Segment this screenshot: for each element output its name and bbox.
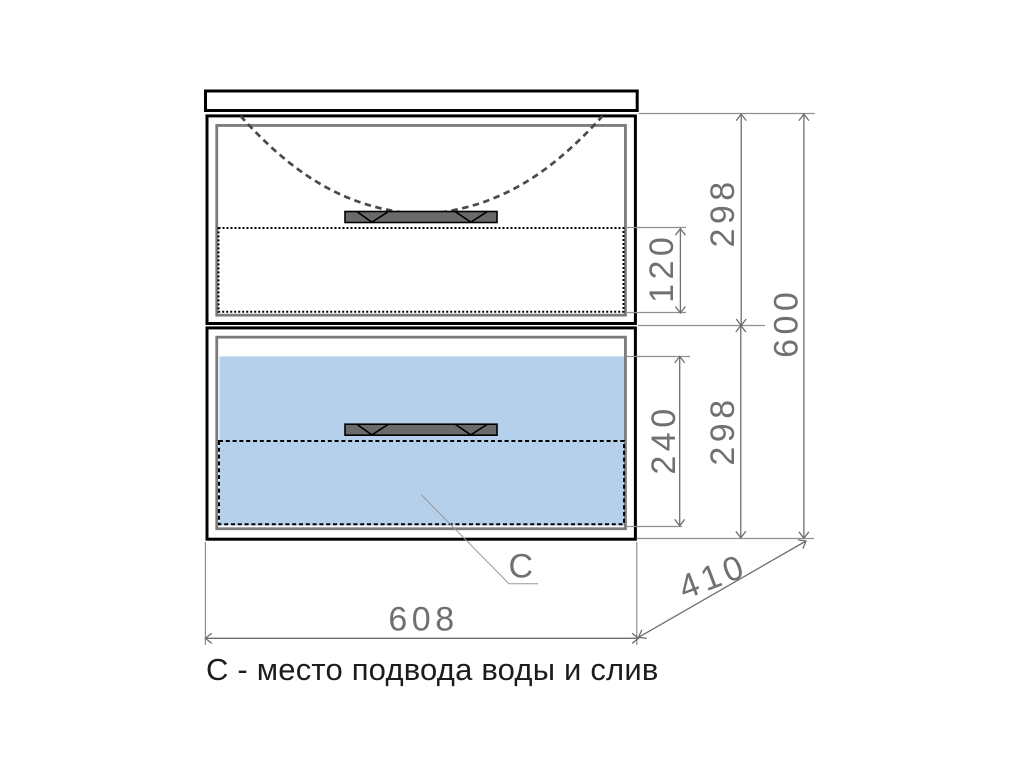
svg-text:120: 120 [643, 233, 681, 303]
svg-text:С: С [508, 548, 537, 586]
svg-text:С - место подвода воды и слив: С - место подвода воды и слив [206, 652, 659, 687]
svg-text:298: 298 [704, 395, 742, 465]
svg-text:240: 240 [645, 404, 683, 474]
svg-text:608: 608 [388, 601, 458, 639]
svg-text:600: 600 [768, 288, 806, 358]
svg-text:298: 298 [704, 177, 742, 247]
